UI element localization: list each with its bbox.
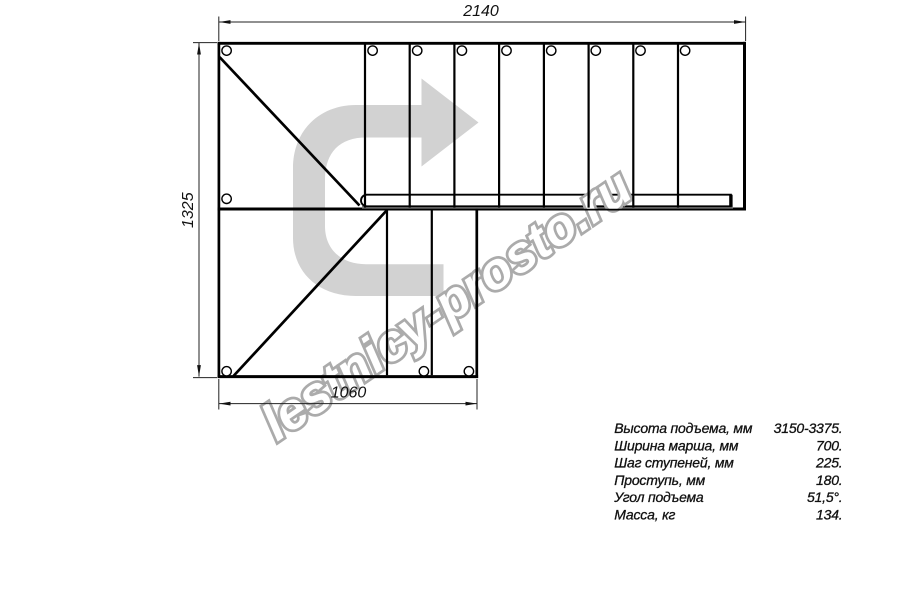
- svg-text:2140: 2140: [462, 3, 499, 20]
- svg-text:1060: 1060: [331, 385, 367, 402]
- svg-text:180.: 180.: [816, 472, 842, 488]
- svg-text:700.: 700.: [816, 438, 842, 454]
- svg-text:Угол подъема: Угол подъема: [613, 489, 704, 505]
- svg-text:Проступь, мм: Проступь, мм: [614, 472, 705, 488]
- svg-text:Шаг ступеней, мм: Шаг ступеней, мм: [614, 455, 734, 471]
- svg-text:Высота подъема, мм: Высота подъема, мм: [614, 420, 753, 436]
- svg-text:Ширина марша, мм: Ширина марша, мм: [614, 438, 739, 454]
- svg-text:3150-3375.: 3150-3375.: [774, 420, 843, 436]
- svg-text:134.: 134.: [816, 506, 842, 522]
- svg-text:51,5°.: 51,5°.: [807, 489, 843, 505]
- svg-text:225.: 225.: [815, 455, 842, 471]
- svg-text:1325: 1325: [180, 192, 197, 228]
- svg-text:Масса, кг: Масса, кг: [614, 506, 675, 522]
